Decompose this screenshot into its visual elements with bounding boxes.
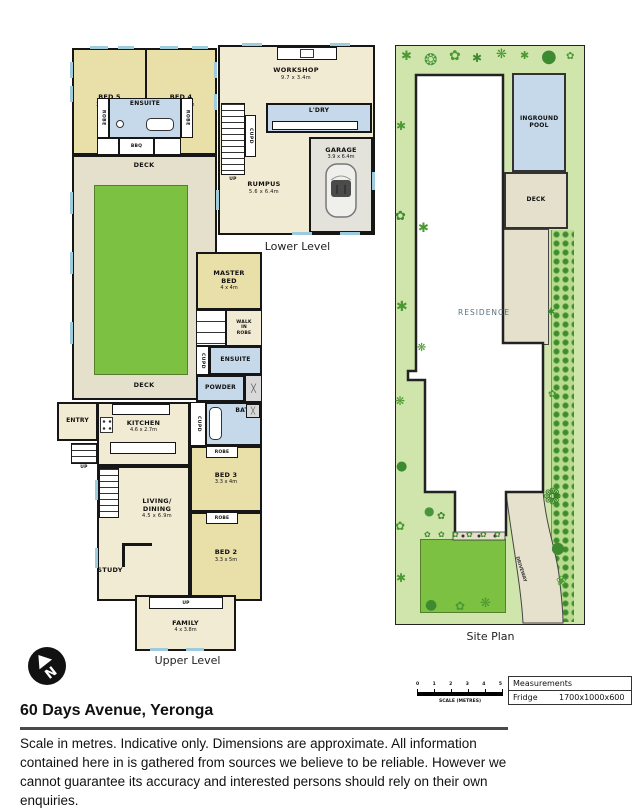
caption-site-plan: Site Plan: [443, 630, 538, 643]
rumpus-dims: 5.6 x 6.4m: [224, 189, 304, 195]
room-label: BED 2: [215, 549, 238, 556]
family-up-strip: UP: [149, 597, 223, 609]
residence-label: RESIDENCE: [458, 308, 510, 317]
window-icon: [70, 322, 73, 344]
living-stairs: [99, 468, 119, 518]
room-dims: 3.9 x 6.4m: [328, 155, 355, 161]
room-dims: 4.6 x 2.7m: [130, 428, 157, 434]
deck-lawn: [94, 185, 188, 375]
robe-strip: ROBE: [181, 98, 193, 138]
cupd-label: CUPD: [200, 353, 205, 369]
window-icon: [214, 62, 217, 78]
bathtub-icon: [209, 407, 222, 440]
kitchen-bench: [112, 404, 170, 415]
vanity-strip: [154, 138, 181, 155]
scalebar-tick: 5: [499, 682, 502, 687]
entry-stairs: [71, 443, 97, 464]
window-icon: [192, 46, 208, 49]
deck-label: DECK: [104, 161, 184, 169]
room-garage: GARAGE 3.9 x 6.4m: [309, 137, 373, 233]
window-icon: [95, 480, 98, 500]
north-arrow-icon: N: [27, 646, 67, 686]
toilet-icon: [116, 120, 124, 128]
robe-strip: ROBE: [206, 446, 238, 458]
disclaimer-text: Scale in metres. Indicative only. Dimens…: [20, 734, 527, 811]
window-icon: [242, 43, 262, 46]
living-label: LIVING/ DINING: [130, 497, 184, 513]
robe-strip: ROBE: [97, 98, 109, 138]
study-wall: [122, 543, 125, 567]
scalebar-bar: [417, 692, 503, 696]
window-icon: [70, 86, 73, 102]
living-dims: 4.5 x 6.9m: [130, 513, 184, 519]
floorplan-page: { "title": "60 Days Avenue, Yeronga", "d…: [0, 0, 633, 800]
up-label: UP: [182, 601, 189, 606]
stove-icon: [100, 417, 113, 433]
porch-post-icon: [478, 535, 481, 538]
room-entry: ENTRY: [57, 402, 98, 441]
cupd-label: CUPD: [196, 416, 201, 432]
porch-post-icon: [462, 535, 465, 538]
bbq-label: BBQ: [131, 144, 142, 149]
room-label: WALK IN ROBE: [233, 320, 255, 336]
room-master-bed: MASTER BED 4 x 4m: [196, 252, 262, 310]
up-label: UP: [221, 177, 245, 182]
window-icon: [186, 648, 204, 651]
measurements-header: Measurements: [509, 677, 631, 691]
room-label: MASTER BED: [209, 270, 249, 285]
shower-icon: ╳: [246, 404, 260, 418]
room-label: ENSUITE: [130, 101, 160, 108]
caption-lower-level: Lower Level: [250, 240, 345, 253]
window-icon: [118, 46, 134, 49]
window-icon: [95, 548, 98, 568]
study-wall: [122, 543, 152, 546]
measurements-row: Fridge 1700x1000x600: [509, 691, 631, 704]
measurement-item: Fridge: [513, 693, 559, 702]
room-bed2: BED 2 3.3 x 5m: [190, 512, 262, 601]
cupboard-strip: CUPD: [245, 115, 256, 157]
window-icon: [70, 62, 73, 78]
window-icon: [150, 648, 168, 651]
site-deck: DECK: [504, 172, 568, 229]
workshop-label: WORKSHOP: [246, 66, 346, 74]
room-label: BED 3: [215, 472, 238, 479]
bathtub-icon: [146, 118, 174, 131]
robe-strip: ROBE: [206, 512, 238, 524]
bbq-bench: BBQ: [119, 138, 154, 155]
shower-icon: ╳: [245, 375, 262, 402]
page-title: 60 Days Avenue, Yeronga: [20, 702, 213, 720]
robe-label: ROBE: [215, 516, 230, 521]
vanity-strip: [97, 138, 119, 155]
shower-glyph: ╳: [251, 384, 256, 393]
scalebar-tick: 1: [433, 682, 436, 687]
window-icon: [70, 252, 73, 274]
scalebar-tick: 3: [466, 682, 469, 687]
workbench: [277, 47, 337, 60]
room-dims: 3.3 x 4m: [215, 480, 237, 486]
robe-label: ROBE: [185, 110, 190, 126]
up-label: UP: [74, 465, 94, 470]
room-powder: POWDER: [196, 375, 245, 402]
site-pool: INGROUND POOL: [512, 73, 566, 172]
scalebar-tick: 2: [449, 682, 452, 687]
lower-stairs: [221, 103, 245, 175]
room-label: GARAGE: [325, 147, 356, 154]
window-icon: [216, 190, 219, 210]
room-label: POWDER: [205, 385, 236, 392]
laundry-bench: [272, 121, 358, 130]
room-walk-in-robe: WALK IN ROBE: [226, 310, 262, 346]
divider: [20, 727, 508, 730]
room-label: KITCHEN: [127, 420, 160, 427]
room-label: FAMILY: [172, 620, 199, 627]
room-dims: 4 x 3.8m: [174, 628, 196, 634]
scalebar-tick: 4: [482, 682, 485, 687]
caption-upper-level: Upper Level: [140, 654, 235, 667]
porch-post-icon: [494, 535, 497, 538]
cupboard-strip: CUPD: [196, 346, 209, 375]
shower-glyph: ╳: [251, 407, 255, 415]
pool-label: INGROUND POOL: [520, 116, 558, 130]
window-icon: [330, 43, 350, 46]
scalebar-numbers: 0 1 2 3 4 5: [416, 682, 502, 687]
cupd-label: CUPD: [248, 128, 253, 144]
window-icon: [292, 232, 312, 235]
scalebar-tick: 0: [416, 682, 419, 687]
room-dims: 3.3 x 5m: [215, 558, 237, 564]
sink-icon: [300, 49, 314, 58]
robe-label: ROBE: [215, 450, 230, 455]
room-dims: 4 x 4m: [220, 286, 237, 292]
robe-label: ROBE: [101, 110, 106, 126]
room-label: ENTRY: [66, 418, 89, 425]
deck-label: DECK: [104, 381, 184, 389]
kitchen-island: [110, 442, 176, 454]
window-icon: [160, 46, 178, 49]
window-icon: [214, 94, 217, 110]
car-icon: [323, 163, 359, 219]
scalebar-caption: SCALE (METRES): [417, 699, 503, 704]
window-icon: [90, 46, 108, 49]
robe-shelves: [196, 310, 226, 346]
site-deck-label: DECK: [527, 197, 546, 204]
room-label: L'DRY: [309, 108, 329, 115]
room-ensuite: ENSUITE: [209, 346, 262, 375]
window-icon: [340, 232, 360, 235]
room-label: ENSUITE: [220, 357, 250, 364]
measurements-table: Measurements Fridge 1700x1000x600: [508, 676, 632, 705]
measurement-size: 1700x1000x600: [559, 693, 624, 702]
window-icon: [70, 192, 73, 214]
window-icon: [372, 172, 375, 190]
workshop-dims: 9.7 x 3.4m: [246, 75, 346, 81]
